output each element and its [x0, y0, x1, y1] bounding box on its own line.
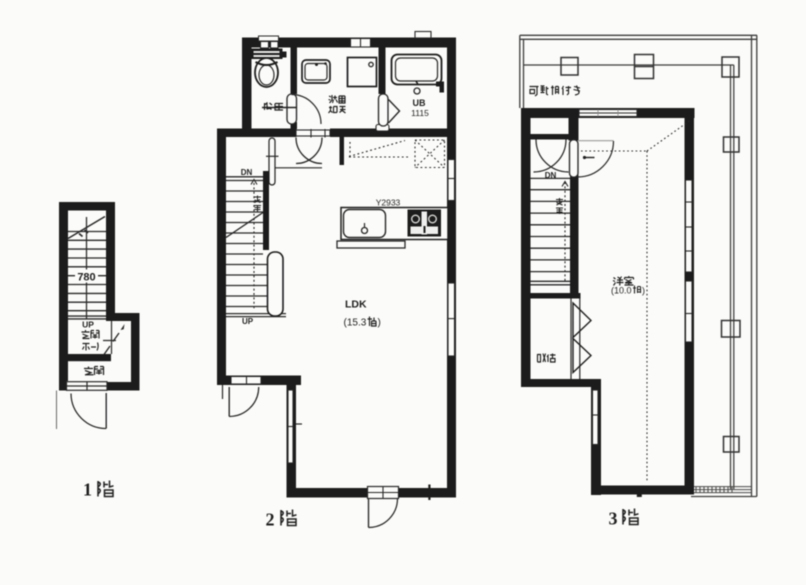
svg-text:DN: DN: [241, 168, 253, 177]
svg-text:LDK: LDK: [345, 299, 367, 311]
svg-text:1: 1: [83, 480, 92, 500]
svg-text:2: 2: [266, 510, 275, 530]
svg-text:780: 780: [77, 272, 95, 284]
svg-text:(10.0: (10.0: [611, 286, 632, 296]
svg-text:1115: 1115: [411, 108, 429, 118]
svg-text:Y2933: Y2933: [376, 198, 401, 208]
svg-text:): ): [642, 286, 645, 296]
svg-text:3: 3: [609, 509, 618, 529]
svg-text:UP: UP: [82, 320, 94, 330]
svg-text:): ): [378, 318, 381, 329]
svg-text:(15.3: (15.3: [344, 318, 367, 329]
svg-text:DN: DN: [545, 171, 557, 180]
svg-text:UP: UP: [242, 317, 254, 326]
svg-text:UB: UB: [413, 98, 426, 108]
